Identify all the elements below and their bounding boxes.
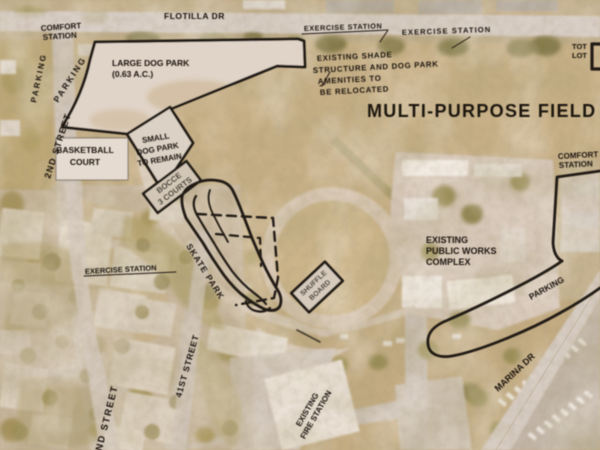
svg-text:FLOTILLA DR: FLOTILLA DR [164,11,225,21]
svg-text:TOT: TOT [572,42,587,51]
svg-text:EXISTING: EXISTING [426,235,468,245]
svg-text:(0.63 A.C.): (0.63 A.C.) [112,69,153,79]
svg-text:BASKETBALL: BASKETBALL [56,145,114,155]
svg-text:STATION: STATION [559,159,594,170]
svg-text:LOT: LOT [572,51,587,60]
svg-text:COURT: COURT [70,157,101,167]
svg-text:COMPLEX: COMPLEX [426,257,471,267]
svg-text:LARGE DOG PARK: LARGE DOG PARK [112,58,190,68]
svg-text:PUBLIC WORKS: PUBLIC WORKS [426,246,497,256]
svg-text:MULTI-PURPOSE FIELD: MULTI-PURPOSE FIELD [367,101,596,121]
